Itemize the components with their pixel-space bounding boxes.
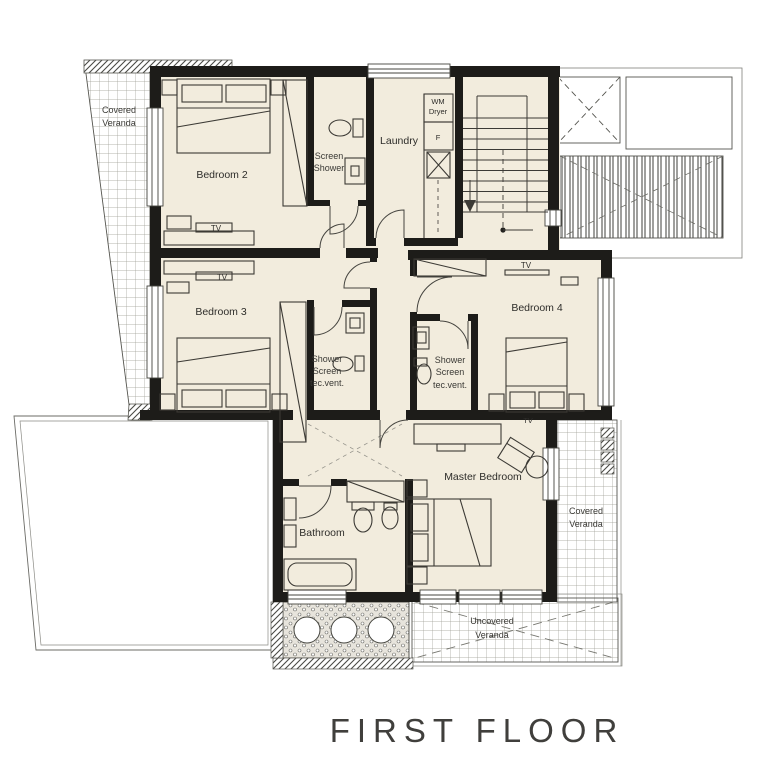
floorplan-svg: Covered Veranda Bedroom 2 Screen Shower … — [0, 0, 758, 780]
wm-label-2: Dryer — [429, 107, 448, 116]
hatch-strip-left — [271, 602, 283, 658]
veranda-topleft-label-1: Covered — [102, 105, 136, 115]
tv-label-br2: TV — [211, 224, 222, 233]
veranda-right-label-1: Covered — [569, 506, 603, 516]
uncovered-veranda-label-1: Uncovered — [470, 616, 514, 626]
window-master-bottom-1 — [420, 590, 456, 604]
veranda-right-label-2: Veranda — [569, 519, 603, 529]
planter-circles — [294, 617, 394, 643]
shower-screen4-label-1: Shower — [435, 355, 466, 365]
wm-label-1: WM — [431, 97, 444, 106]
screen-shower-label-1: Screen — [315, 151, 344, 161]
window-bathroom-bottom — [288, 590, 346, 604]
shower-screen3-label-1: Shower — [312, 354, 343, 364]
screen-shower-label-2: Shower — [314, 163, 345, 173]
shower-screen3-label-2: Screen — [313, 366, 342, 376]
floor-plan-page: Covered Veranda Bedroom 2 Screen Shower … — [0, 0, 758, 780]
uncovered-veranda — [412, 598, 618, 662]
tv-label-master: TV — [523, 416, 533, 425]
page-title: FIRST FLOOR — [330, 712, 625, 749]
hatch-band-bottom — [273, 658, 413, 669]
shower-screen3-label-3: tec.vent. — [310, 378, 344, 388]
shower-screen4-label-2: Screen — [436, 367, 465, 377]
shower-screen4-label-3: tec.vent. — [433, 380, 467, 390]
laundry-label: Laundry — [380, 135, 419, 147]
bedroom2-label: Bedroom 2 — [196, 169, 248, 181]
roof-panel — [626, 77, 732, 149]
window-bedroom3-left — [147, 286, 163, 378]
open-terrace-outline-inner — [20, 421, 268, 645]
window-bedroom2-left — [147, 108, 163, 206]
window-laundry-top — [368, 64, 450, 78]
uncovered-veranda-label-2: Veranda — [475, 630, 509, 640]
tv-label-br3: TV — [217, 273, 228, 282]
tv-label-br4: TV — [521, 261, 532, 270]
veranda-topleft-label-2: Veranda — [102, 118, 136, 128]
open-terrace-outline — [14, 416, 273, 650]
window-master-bottom-2 — [459, 590, 500, 604]
bedroom4-label: Bedroom 4 — [511, 302, 563, 314]
window-bedroom4-right — [598, 278, 614, 406]
master-label: Master Bedroom — [444, 471, 522, 483]
freezer-label: F — [436, 133, 441, 142]
window-master-bottom-3 — [502, 590, 542, 604]
bedroom3-label: Bedroom 3 — [195, 306, 247, 318]
bathroom-label: Bathroom — [299, 527, 345, 539]
